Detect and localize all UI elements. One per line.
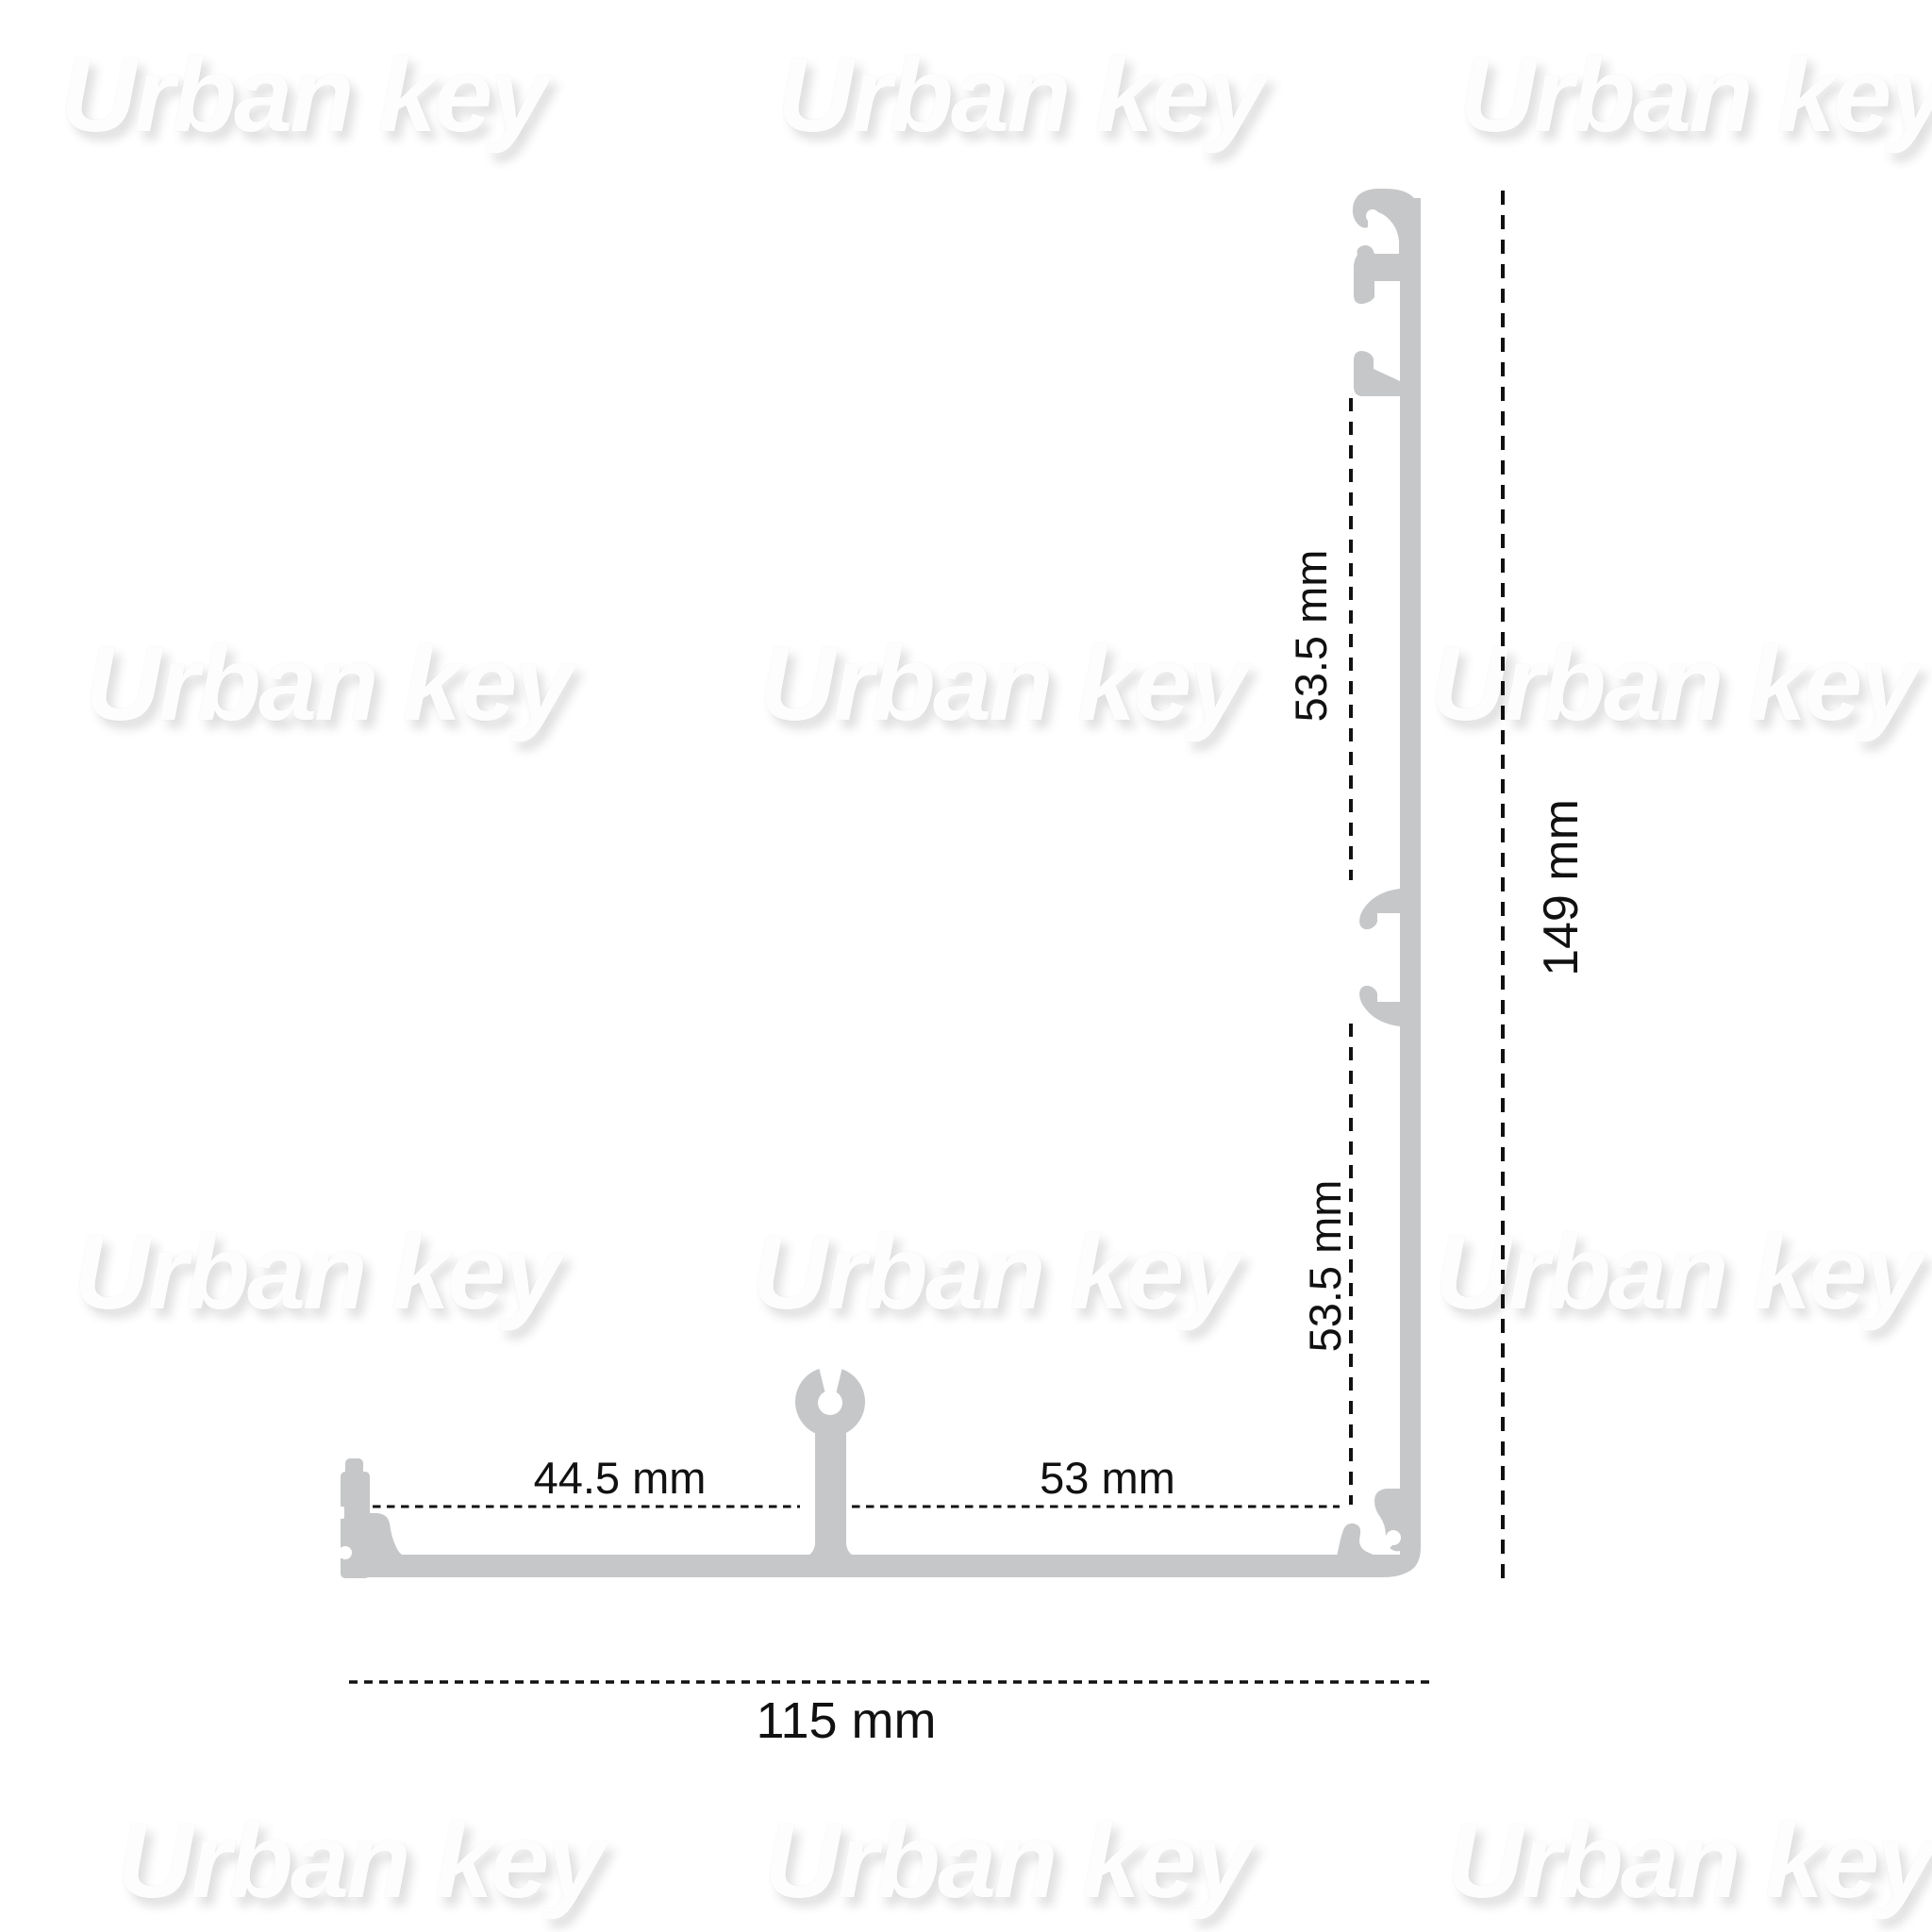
end-tab-notch-opening xyxy=(332,1548,345,1558)
dimension-lines xyxy=(349,191,1503,1682)
profile-hook-top-a xyxy=(1354,245,1400,304)
profile-cutouts xyxy=(332,209,1401,1559)
profile-end-tab xyxy=(341,1472,370,1578)
profile-hook-mid-a xyxy=(1359,889,1400,929)
dim-label-seg-left: 44.5 mm xyxy=(534,1453,707,1503)
profile-corner-finger xyxy=(1337,1524,1378,1557)
profile-drawing: 44.5 mm 53 mm 115 mm 53.5 mm 53.5 mm 149… xyxy=(0,0,1932,1932)
profile-end-nub xyxy=(345,1458,363,1477)
dim-label-seg-upper: 53.5 mm xyxy=(1286,550,1336,723)
profile-top-cane xyxy=(1353,189,1421,255)
cane-notch-opening xyxy=(1368,217,1377,226)
dim-label-seg-lower: 53.5 mm xyxy=(1300,1180,1350,1353)
profile-hook-top-b xyxy=(1354,351,1400,396)
end-tab-side-notch xyxy=(335,1507,344,1519)
profile-cross-section xyxy=(341,189,1421,1578)
diagram-canvas: Urban key Urban key Urban key Urban key … xyxy=(0,0,1932,1932)
dim-label-width-total: 115 mm xyxy=(756,1692,936,1749)
dim-label-seg-right: 53 mm xyxy=(1040,1453,1175,1503)
profile-end-step xyxy=(370,1513,405,1557)
profile-stem xyxy=(815,1417,846,1557)
profile-l-body xyxy=(341,198,1421,1577)
dim-label-height-total: 149 mm xyxy=(1534,799,1589,976)
profile-hook-mid-b xyxy=(1359,986,1400,1026)
